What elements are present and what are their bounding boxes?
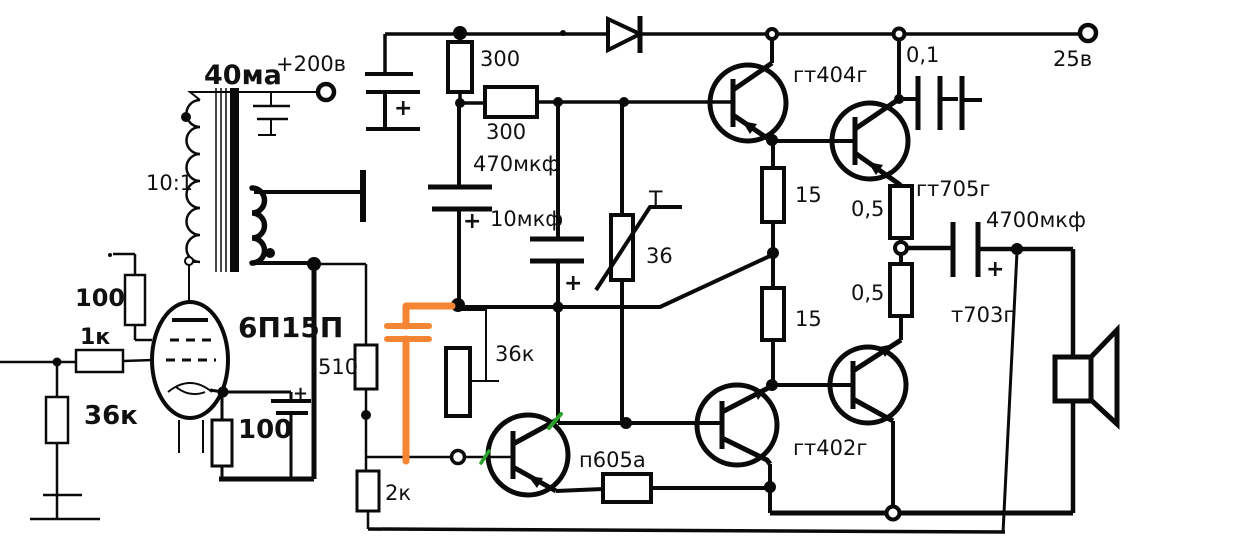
label-q-gt404g: гт404г [793,63,867,87]
resistor-300-top [448,42,472,92]
resistor-screen-100 [125,275,145,325]
label-r-05-lower: 0,5 [851,281,884,305]
input-tap-terminal [452,451,465,464]
wires [0,34,1085,533]
label-c-470: 470мкф [473,152,560,176]
label-25v: 25в [1053,47,1092,71]
plus-4700mkf: + [986,257,1004,282]
label-tube: 6П15П [238,311,343,344]
label-r-300-top: 300 [480,47,520,71]
secondary-phase-dot [265,248,275,258]
label-r-05-upper: 0,5 [851,197,884,221]
resistor-input-36k [46,397,68,443]
cap-10mkf [530,239,584,261]
label-r-15-lower: 15 [795,307,822,331]
plate-supply-terminal [318,84,334,100]
label-c-10: 10мкф [490,207,563,231]
label-q-gt402g: гт402г [793,436,867,460]
label-r-screen: 100 [75,284,125,312]
highlighted-capacitor [387,306,452,461]
cap-4700mkf [953,222,978,277]
resistor-300-mid [485,87,537,117]
tube-cathode [168,383,212,394]
resistor-05-lower [890,264,912,316]
vacuum-tube [152,302,228,418]
plus-cathode-cap: + [293,383,308,404]
diode [608,16,640,53]
speaker-icon [1055,330,1117,424]
label-r-2k: 2к [385,481,411,505]
cap-470mkf [428,187,492,209]
output-transformer [181,88,275,272]
resistor-grid-1k [76,350,123,372]
diode-triangle [608,19,640,50]
transistor-p605a [488,415,568,495]
resistor-cathode-100 [212,420,232,466]
label-r-grid: 1к [80,325,110,350]
label-plate-supply: +200в [276,52,346,76]
resistor-15-upper [762,168,784,222]
label-ratio: 10:1 [146,171,193,195]
transistor-t703g [830,340,906,423]
label-q-t703g: т703г [951,303,1014,327]
plus-rail-cap: + [394,96,412,121]
resistor-510 [355,345,377,389]
core-lines [216,88,226,272]
label-r-cathode: 100 [238,415,292,445]
label-q-gt705g: гт705г [916,177,990,201]
label-thermistor-36: 36 [646,244,673,268]
resistor-p605a-emitter [603,474,651,502]
label-thermistor-t: T [648,188,663,213]
resistor-36k-mid [446,348,470,416]
primary-bottom-node [185,257,193,265]
label-r-15-upper: 15 [795,183,822,207]
label-r-36k-mid: 36к [495,342,534,366]
label-r-input: 36к [84,401,138,431]
plus-470mkf: + [463,209,481,234]
schematic-page: 40ма +200в 10:1 100 1к 36к 6П15П 100 510… [0,0,1257,556]
core-bar [230,88,239,272]
resistor-2k [357,471,379,511]
resistors [46,42,912,511]
label-c-01: 0,1 [906,43,939,67]
label-c-4700: 4700мкф [986,208,1086,232]
plus-10mkf: + [564,271,582,296]
resistor-05-upper [890,186,912,238]
resistor-15-lower [762,288,784,340]
primary-phase-dot [181,112,191,122]
label-anode-current: 40ма [204,60,282,91]
secondary-winding [252,188,265,263]
cap-01 [918,76,962,130]
label-r-300-mid: 300 [486,120,526,144]
amplifier-schematic: 40ма +200в 10:1 100 1к 36к 6П15П 100 510… [0,0,1257,556]
label-r-feedback: 510 [318,355,358,379]
output-supply-terminal [1080,25,1096,41]
label-q-p605a: п605а [579,448,646,472]
